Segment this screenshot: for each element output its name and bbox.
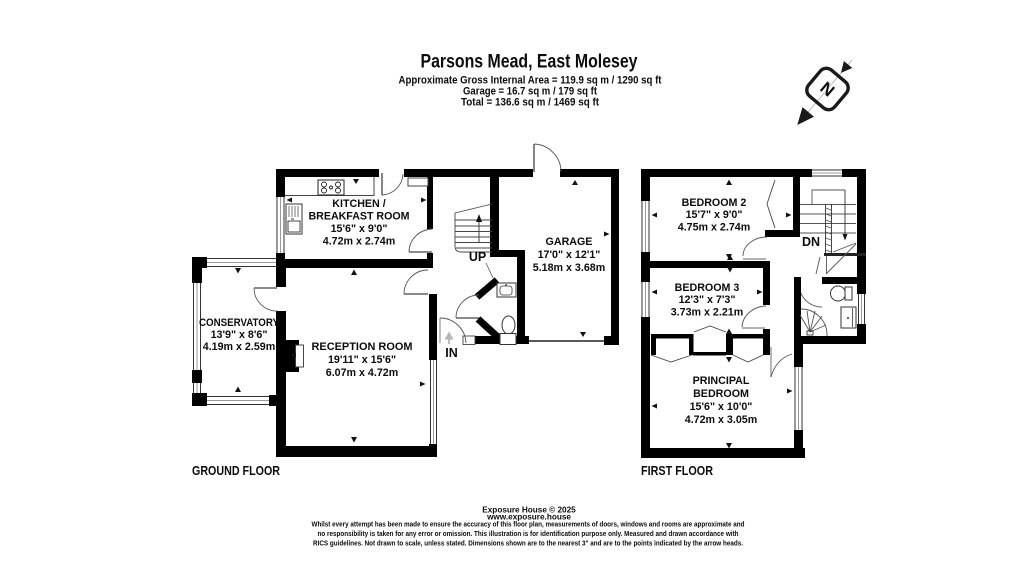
- svg-text:4.75m x 2.74m: 4.75m x 2.74m: [678, 222, 751, 234]
- svg-text:13'9" x 8'6": 13'9" x 8'6": [211, 329, 268, 341]
- svg-text:15'6" x 9'0": 15'6" x 9'0": [331, 223, 388, 235]
- svg-text:RICS guidelines. Not drawn to: RICS guidelines. Not drawn to scale, unl…: [313, 541, 743, 548]
- svg-text:KITCHEN /: KITCHEN /: [332, 198, 385, 210]
- svg-text:15'7" x 9'0": 15'7" x 9'0": [686, 209, 743, 221]
- svg-text:15'6" x 10'0": 15'6" x 10'0": [690, 401, 753, 413]
- svg-text:BREAKFAST ROOM: BREAKFAST ROOM: [309, 211, 410, 223]
- svg-text:FIRST FLOOR: FIRST FLOOR: [641, 464, 713, 478]
- svg-text:Parsons Mead, East Molesey: Parsons Mead, East Molesey: [421, 52, 638, 73]
- svg-text:CONSERVATORY: CONSERVATORY: [199, 317, 279, 329]
- svg-text:3.73m x 2.21m: 3.73m x 2.21m: [671, 307, 744, 319]
- svg-text:PRINCIPAL: PRINCIPAL: [693, 375, 750, 387]
- svg-text:UP: UP: [469, 250, 486, 264]
- svg-text:12'3" x 7'3": 12'3" x 7'3": [679, 294, 736, 306]
- svg-text:Total = 136.6 sq m / 1469 sq f: Total = 136.6 sq m / 1469 sq ft: [461, 97, 599, 109]
- svg-text:no responsibility is taken for: no responsibility is taken for any error…: [318, 531, 739, 538]
- svg-text:BEDROOM: BEDROOM: [693, 388, 749, 400]
- svg-text:17'0" x 12'1": 17'0" x 12'1": [538, 249, 601, 261]
- svg-text:GARAGE: GARAGE: [546, 236, 593, 248]
- svg-text:6.07m x 4.72m: 6.07m x 4.72m: [326, 367, 399, 379]
- svg-text:www.exposure.house: www.exposure.house: [486, 513, 571, 522]
- svg-text:4.72m x 2.74m: 4.72m x 2.74m: [323, 236, 396, 248]
- svg-text:BEDROOM 3: BEDROOM 3: [675, 282, 740, 294]
- svg-text:IN: IN: [445, 346, 458, 360]
- svg-text:19'11" x 15'6": 19'11" x 15'6": [328, 354, 396, 366]
- svg-text:DN: DN: [802, 235, 820, 249]
- svg-text:4.72m x 3.05m: 4.72m x 3.05m: [685, 414, 758, 426]
- svg-text:Whilst every attempt has been: Whilst every attempt has been made to en…: [312, 522, 745, 529]
- svg-text:4.19m x 2.59m: 4.19m x 2.59m: [203, 341, 276, 353]
- svg-text:GROUND FLOOR: GROUND FLOOR: [192, 464, 280, 478]
- svg-text:RECEPTION ROOM: RECEPTION ROOM: [312, 341, 413, 353]
- svg-text:5.18m x 3.68m: 5.18m x 3.68m: [533, 262, 606, 274]
- svg-text:BEDROOM 2: BEDROOM 2: [682, 197, 747, 209]
